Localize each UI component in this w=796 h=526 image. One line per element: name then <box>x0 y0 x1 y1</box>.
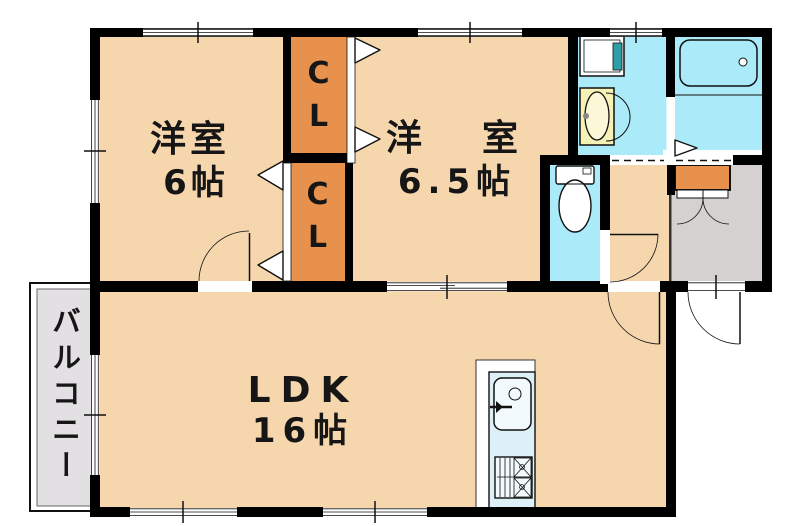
stove <box>495 457 532 498</box>
entrance-step-edge <box>669 195 672 281</box>
closet-lower-label: CL <box>302 177 332 263</box>
floorplan-drawing <box>0 0 796 526</box>
toilet <box>556 166 594 232</box>
balcony-label: バルコニー <box>50 306 79 486</box>
kitchen-sink <box>490 378 531 430</box>
ldk-label: LDK <box>248 373 359 409</box>
bedroom1-size: 6帖 <box>163 166 229 200</box>
kitchen-counter <box>476 360 535 508</box>
bedroom2-size: 6.5帖 <box>398 165 516 199</box>
bedroom1-label: 洋室 <box>150 122 230 158</box>
front-door <box>688 275 745 344</box>
bedroom2-label: 洋 室 <box>386 121 530 157</box>
bathtub <box>680 40 757 86</box>
floorplan: 洋室 6帖 洋 室 6.5帖 LDK 16帖 バルコニー CL CL <box>0 0 796 526</box>
ldk-size: 16帖 <box>252 414 354 448</box>
closet-upper-label: CL <box>303 56 333 142</box>
washing-machine-pan <box>580 36 624 76</box>
